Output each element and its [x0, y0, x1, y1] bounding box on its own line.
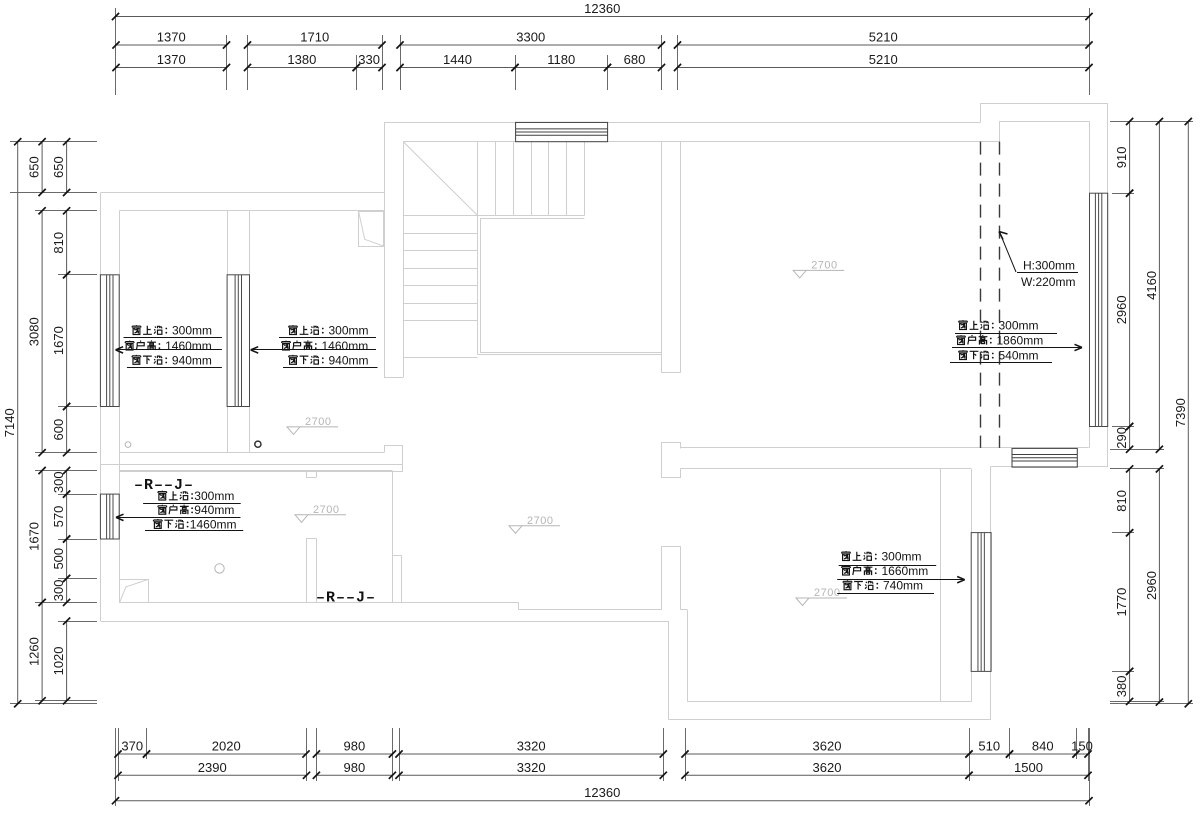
svg-text:1460mm: 1460mm: [322, 339, 369, 353]
svg-text:1770: 1770: [1114, 588, 1129, 617]
svg-text:1460mm: 1460mm: [165, 339, 212, 353]
svg-text:330: 330: [358, 52, 380, 67]
svg-text:300mm: 300mm: [329, 324, 369, 338]
svg-text:740mm: 740mm: [883, 579, 923, 593]
svg-text:1020: 1020: [51, 646, 66, 675]
svg-text:1500: 1500: [1014, 760, 1043, 775]
svg-text:650: 650: [27, 156, 42, 178]
svg-text:3620: 3620: [813, 760, 842, 775]
svg-text:300mm: 300mm: [882, 550, 922, 564]
svg-text:510: 510: [978, 739, 1000, 754]
svg-text:1440: 1440: [443, 52, 472, 67]
svg-text:12360: 12360: [584, 785, 620, 800]
svg-text:3300: 3300: [516, 30, 545, 45]
svg-text:7390: 7390: [1173, 398, 1188, 427]
svg-text:2390: 2390: [198, 760, 227, 775]
svg-text:2700: 2700: [814, 587, 840, 599]
svg-text:810: 810: [51, 232, 66, 254]
svg-text:3320: 3320: [517, 739, 546, 754]
svg-text:1260: 1260: [27, 637, 42, 666]
svg-text:2700: 2700: [527, 515, 553, 527]
svg-text:2960: 2960: [1114, 295, 1129, 324]
svg-text:1860mm: 1860mm: [997, 334, 1044, 348]
svg-text:3620: 3620: [813, 739, 842, 754]
svg-text:7140: 7140: [2, 408, 17, 437]
svg-text:5210: 5210: [869, 30, 898, 45]
svg-text:3320: 3320: [517, 760, 546, 775]
svg-text:980: 980: [344, 760, 366, 775]
svg-text:3080: 3080: [27, 317, 42, 346]
svg-text:380: 380: [1114, 676, 1129, 698]
svg-text:2700: 2700: [811, 259, 837, 271]
svg-text:300mm: 300mm: [172, 324, 212, 338]
svg-text:300: 300: [51, 580, 66, 602]
svg-text:1370: 1370: [157, 52, 186, 67]
svg-text:2700: 2700: [305, 416, 331, 428]
svg-text:940mm: 940mm: [329, 353, 369, 367]
svg-text:–R––J–: –R––J–: [316, 590, 376, 607]
svg-text:1460mm: 1460mm: [190, 517, 237, 531]
svg-text:H:300mm: H:300mm: [1023, 259, 1075, 273]
svg-text:570: 570: [51, 506, 66, 528]
svg-text:300: 300: [51, 471, 66, 493]
svg-text:680: 680: [624, 52, 646, 67]
svg-text:1670: 1670: [51, 326, 66, 355]
svg-text:2960: 2960: [1144, 571, 1159, 600]
svg-text:300mm: 300mm: [999, 319, 1039, 333]
svg-text:650: 650: [51, 156, 66, 178]
svg-text:300mm: 300mm: [194, 489, 234, 503]
svg-text:500: 500: [51, 548, 66, 570]
svg-text:1370: 1370: [157, 30, 186, 45]
svg-text:290: 290: [1114, 427, 1129, 449]
svg-text:840: 840: [1032, 739, 1054, 754]
svg-text:1670: 1670: [27, 522, 42, 551]
svg-text:4160: 4160: [1144, 271, 1159, 300]
svg-text:2020: 2020: [212, 739, 241, 754]
svg-text:12360: 12360: [584, 1, 620, 16]
svg-text:2700: 2700: [313, 504, 339, 516]
svg-text:940mm: 940mm: [194, 503, 234, 517]
svg-text:W:220mm: W:220mm: [1021, 275, 1075, 289]
svg-text:1710: 1710: [300, 30, 329, 45]
svg-text:1380: 1380: [287, 52, 316, 67]
svg-text:370: 370: [121, 739, 143, 754]
svg-text:910: 910: [1114, 146, 1129, 168]
svg-text:1180: 1180: [547, 52, 575, 67]
svg-text:540mm: 540mm: [999, 349, 1039, 363]
svg-text:980: 980: [344, 739, 366, 754]
svg-text:600: 600: [51, 419, 66, 441]
svg-text:940mm: 940mm: [172, 353, 212, 367]
svg-text:5210: 5210: [869, 52, 898, 67]
svg-text:150: 150: [1071, 739, 1093, 754]
svg-text:1660mm: 1660mm: [882, 564, 929, 578]
svg-text:810: 810: [1114, 490, 1129, 512]
